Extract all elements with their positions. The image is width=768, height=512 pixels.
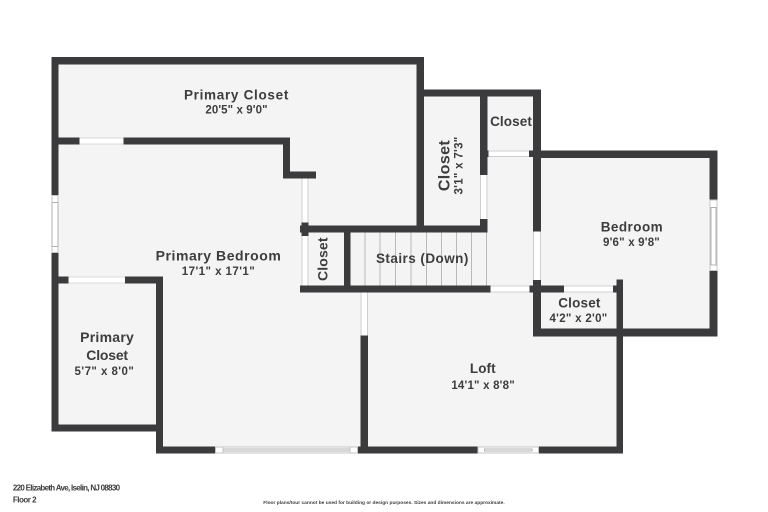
svg-text:Stairs (Down): Stairs (Down) bbox=[376, 251, 469, 266]
svg-text:Primary: Primary bbox=[80, 329, 134, 345]
svg-text:Floor 2: Floor 2 bbox=[13, 495, 37, 504]
svg-text:Primary Closet: Primary Closet bbox=[184, 87, 289, 102]
svg-text:Bedroom: Bedroom bbox=[601, 219, 663, 234]
svg-text:Floor plans/tour cannot be use: Floor plans/tour cannot be used for buil… bbox=[263, 500, 505, 506]
svg-text:9'6" x 9'8": 9'6" x 9'8" bbox=[603, 237, 660, 249]
svg-text:4'2" x 2'0": 4'2" x 2'0" bbox=[549, 313, 607, 325]
svg-text:17'1" x 17'1": 17'1" x 17'1" bbox=[182, 266, 255, 278]
svg-text:5'7" x 8'0": 5'7" x 8'0" bbox=[75, 366, 135, 378]
svg-text:3'1" x 7'3": 3'1" x 7'3" bbox=[454, 136, 466, 194]
svg-text:Closet: Closet bbox=[437, 140, 454, 192]
svg-text:Closet: Closet bbox=[314, 237, 330, 281]
svg-text:220 Elizabeth Ave, Iselin, NJ: 220 Elizabeth Ave, Iselin, NJ 08830 bbox=[13, 483, 121, 492]
svg-text:14'1" x 8'8": 14'1" x 8'8" bbox=[451, 380, 515, 392]
svg-text:Primary Bedroom: Primary Bedroom bbox=[156, 248, 282, 264]
svg-text:Closet: Closet bbox=[86, 347, 128, 363]
svg-text:Closet: Closet bbox=[490, 114, 532, 129]
svg-text:Loft: Loft bbox=[470, 361, 496, 376]
svg-text:Closet: Closet bbox=[558, 295, 601, 310]
svg-text:20'5" x 9'0": 20'5" x 9'0" bbox=[205, 105, 267, 117]
